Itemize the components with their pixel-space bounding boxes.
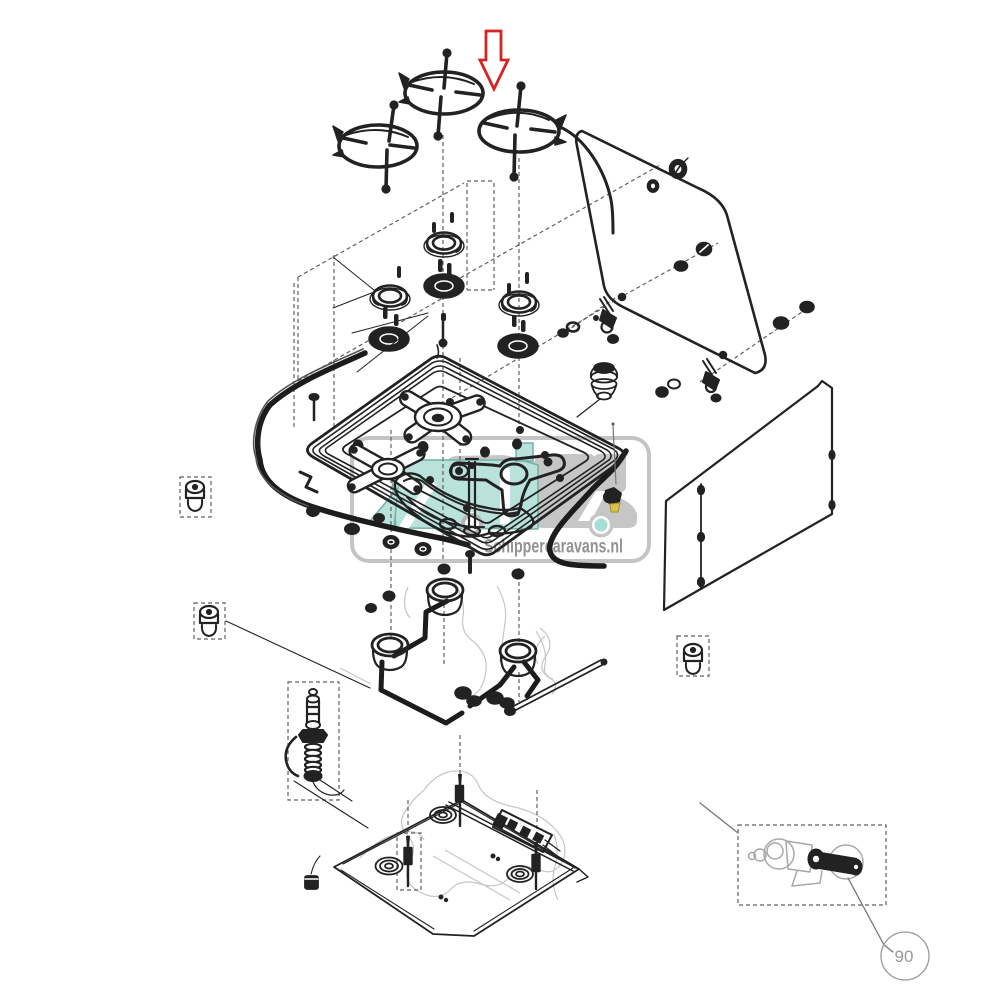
svg-text:90: 90 (895, 947, 914, 966)
